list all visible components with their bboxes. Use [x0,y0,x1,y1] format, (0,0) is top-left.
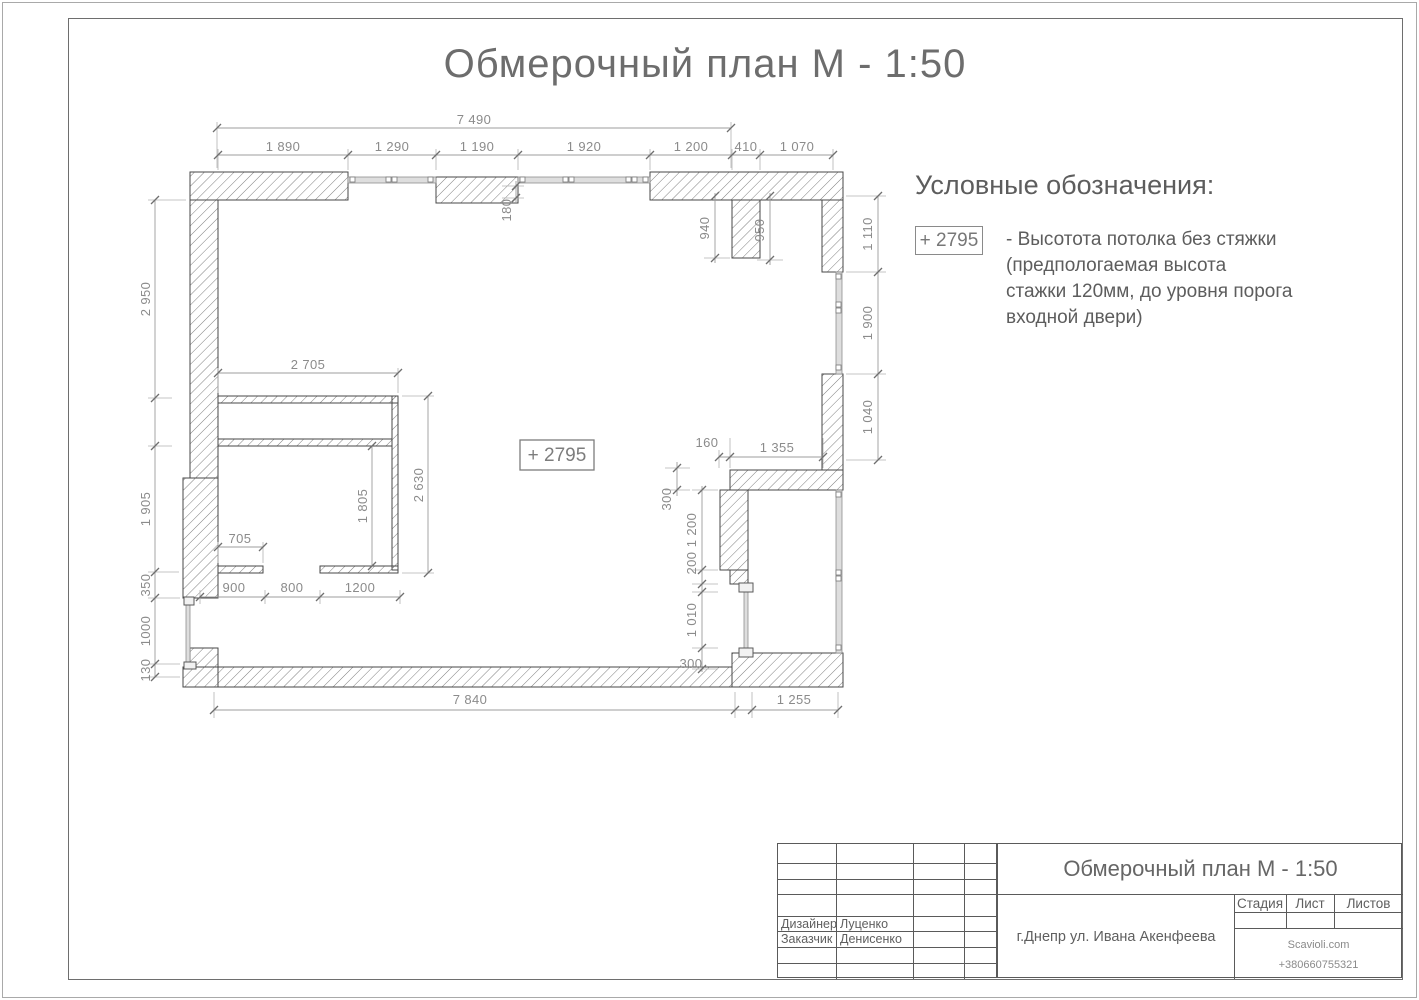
dim-label: 950 [752,219,767,242]
drawing-sheet: Обмерочный план М - 1:50 [0,0,1419,1000]
dim-label: 1 070 [780,139,815,154]
client-label: Заказчик [781,931,835,947]
dim-label: 350 [138,574,153,597]
dim-label: 1 920 [567,139,602,154]
legend-desc-line: - Высотота потолка без стяжки [1006,229,1336,255]
dim-label: 1 010 [684,603,699,638]
dim-label: 1 190 [460,139,495,154]
title-block-main: Обмерочный план М - 1:50 г.Днепр ул. Ива… [997,843,1402,978]
dim-label: 1 200 [684,513,699,548]
company-phone: +380660755321 [1234,957,1403,973]
dim-label: 7 490 [457,112,492,127]
height-mark-label: + 2795 [528,445,587,466]
dim-label: 130 [138,659,153,682]
dim-label: 1 355 [760,440,795,455]
dim-label: 1 110 [860,217,875,251]
legend-desc-line: входной двери) [1006,307,1336,333]
dim-label: 180 [499,199,514,222]
dimension-labels: 7 490 1 890 1 290 1 190 1 920 1 200 410 … [138,112,875,707]
dim-label: 1 805 [355,489,370,524]
legend-desc-line: стажки 120мм, до уровня порога [1006,281,1336,307]
dim-label: 2 950 [138,282,153,317]
dimension-lines [155,128,878,710]
dim-label: 1 905 [138,492,153,527]
sheets-label: Листов [1334,894,1403,912]
dim-label: 705 [229,531,252,546]
sheet-label: Лист [1286,894,1334,912]
dim-label: 1200 [345,580,376,595]
dim-label: 300 [659,488,674,511]
title-block-title: Обмерочный план М - 1:50 [998,844,1403,894]
legend-heading: Условные обозначения: [915,170,1214,201]
interior-walls [218,396,398,573]
dim-label: 1000 [138,616,153,647]
ceiling-height-mark: + 2795 [520,440,594,470]
extension-lines [148,122,886,718]
stage-label: Стадия [1234,894,1286,912]
legend-height-mark-label: + 2795 [920,230,979,252]
designer-label: Дизайнер [781,916,835,931]
legend-height-mark-box: + 2795 [915,226,983,255]
dim-label: 800 [281,580,304,595]
dim-label: 940 [697,217,712,240]
dim-label: 2 630 [411,468,426,503]
dim-label: 1 290 [375,139,410,154]
dim-label: 200 [684,552,699,575]
designer-name: Луценко [840,916,912,931]
company-name: Scavioli.com [1234,937,1403,953]
dim-label: 2 705 [291,357,326,372]
dim-label: 7 840 [453,692,488,707]
dim-label: 900 [223,580,246,595]
client-name: Денисенко [840,931,912,947]
window-vent-marks [350,177,841,650]
door-jambs [184,583,753,669]
dim-label: 410 [735,139,758,154]
dim-label: 300 [680,656,703,671]
title-block-address: г.Днепр ул. Ивана Акенфеева [998,894,1234,979]
dim-label: 160 [696,435,719,450]
title-block-left-table: Дизайнер Луценко Заказчик Денисенко [777,843,997,978]
legend-desc-line: (предпологаемая высота [1006,255,1336,281]
dim-label: 1 255 [777,692,812,707]
dimension-ticks [151,124,882,714]
dim-label: 1 200 [674,139,709,154]
dim-label: 1 890 [266,139,301,154]
dim-label: 1 900 [860,306,875,341]
dim-label: 1 040 [860,400,875,435]
